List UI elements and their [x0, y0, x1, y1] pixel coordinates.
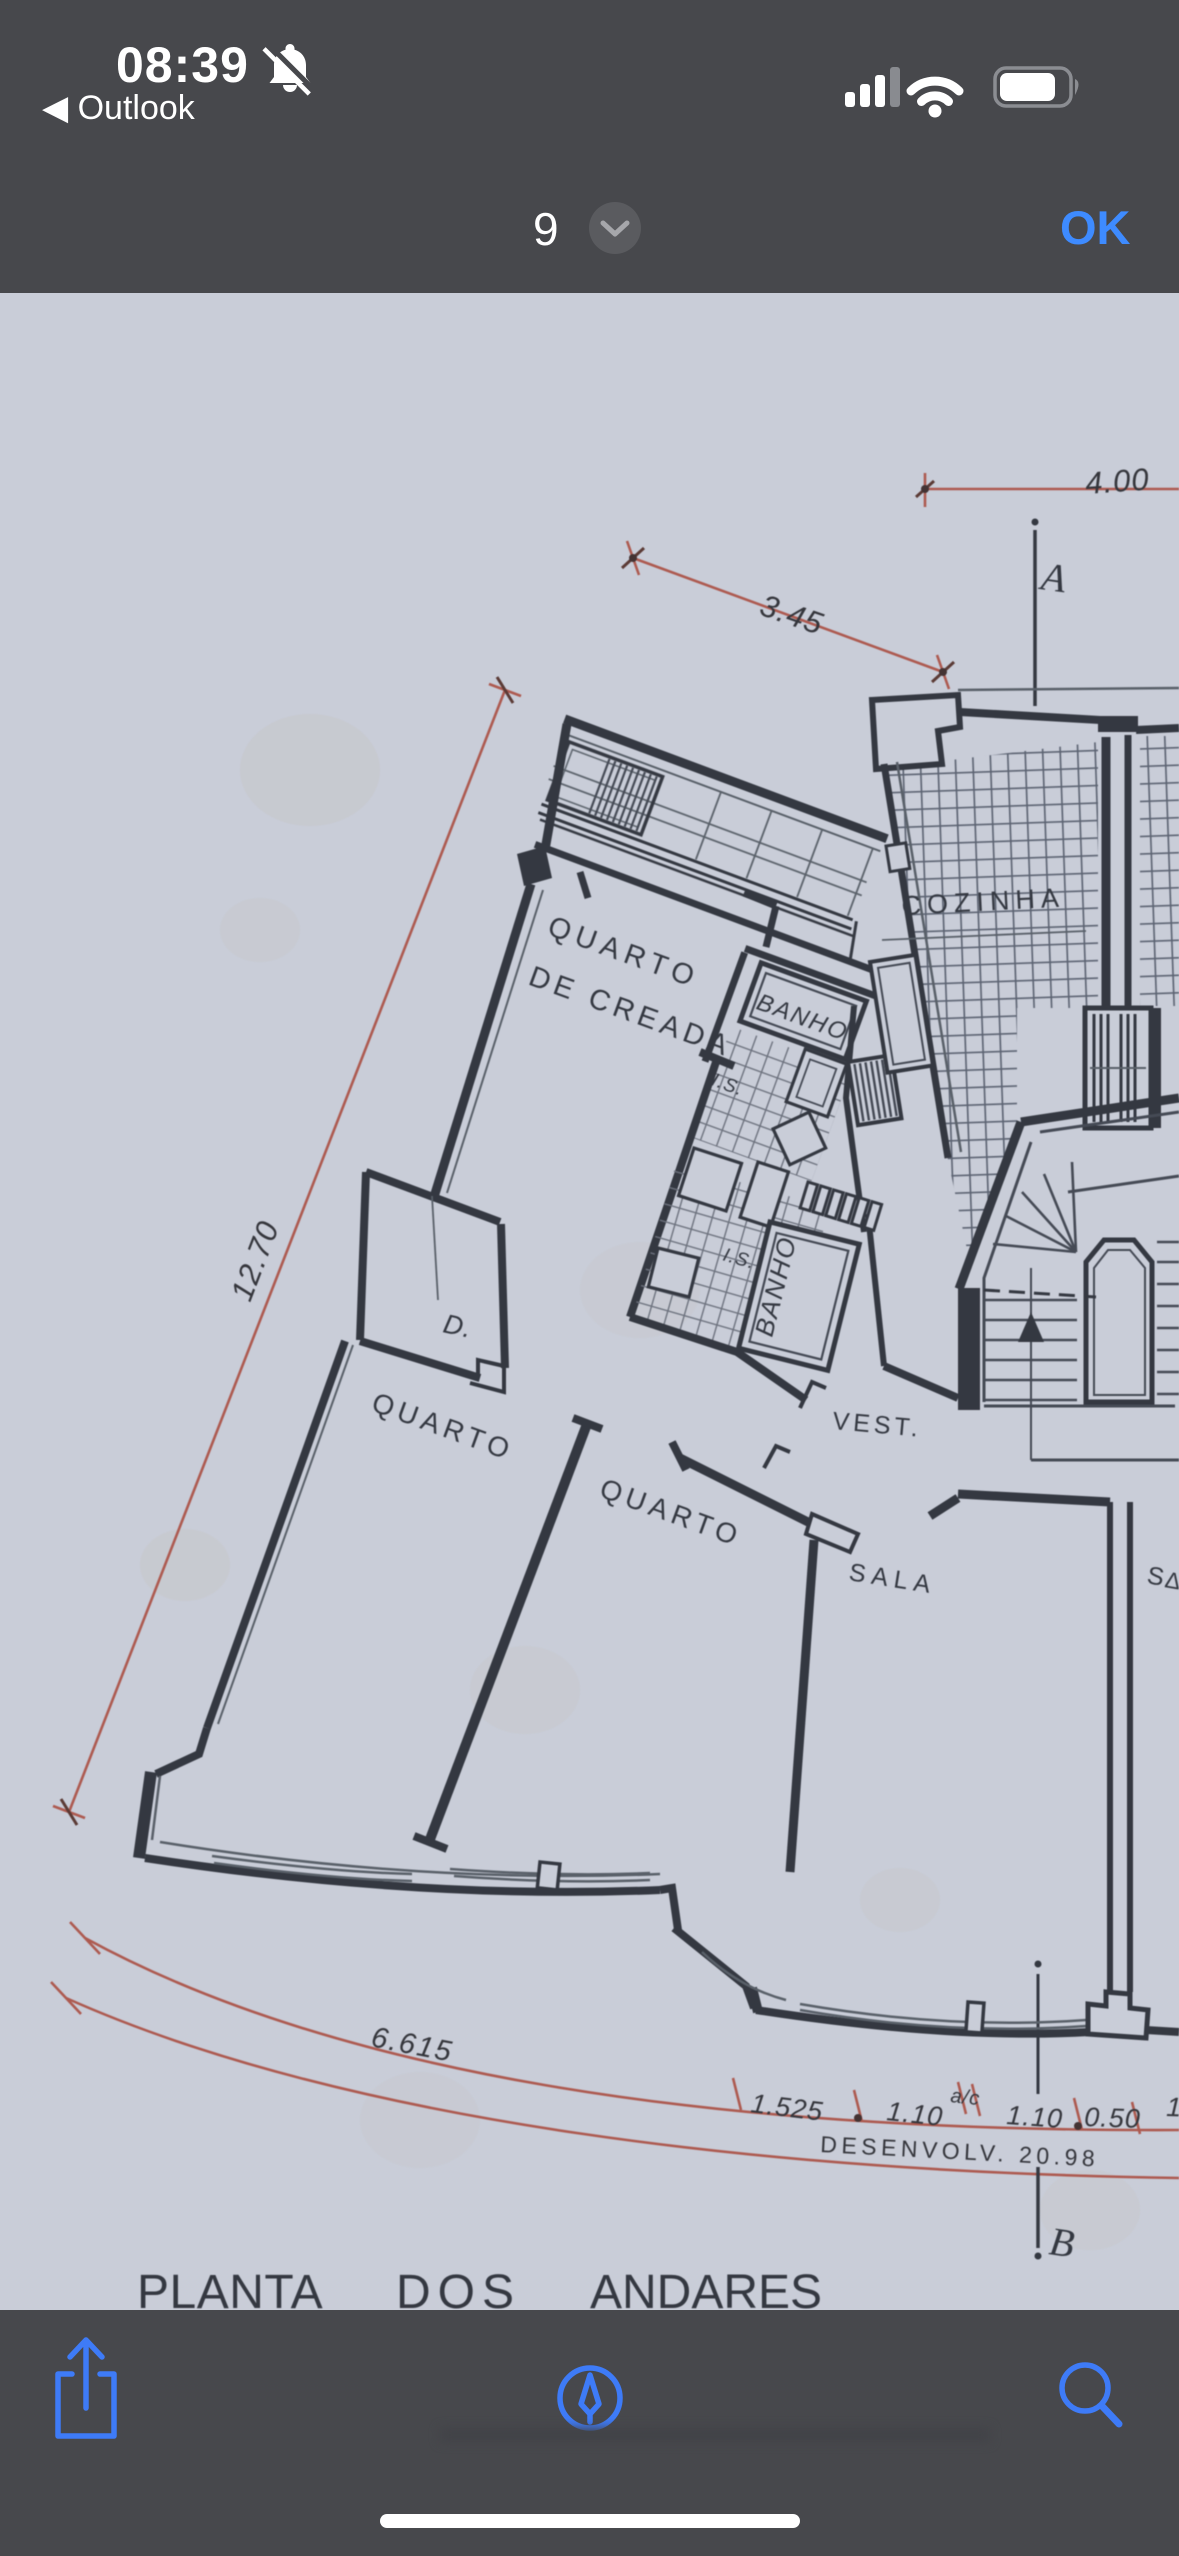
svg-text:1.10: 1.10	[885, 2096, 944, 2132]
svg-text:a/c: a/c	[949, 2085, 981, 2110]
svg-text:1.10: 1.10	[1006, 2100, 1065, 2134]
svg-text:0.50: 0.50	[1084, 2102, 1142, 2134]
svg-text:4.00: 4.00	[1084, 462, 1151, 501]
svg-text:D.: D.	[441, 1309, 476, 1344]
svg-text:1: 1	[1166, 2092, 1179, 2123]
